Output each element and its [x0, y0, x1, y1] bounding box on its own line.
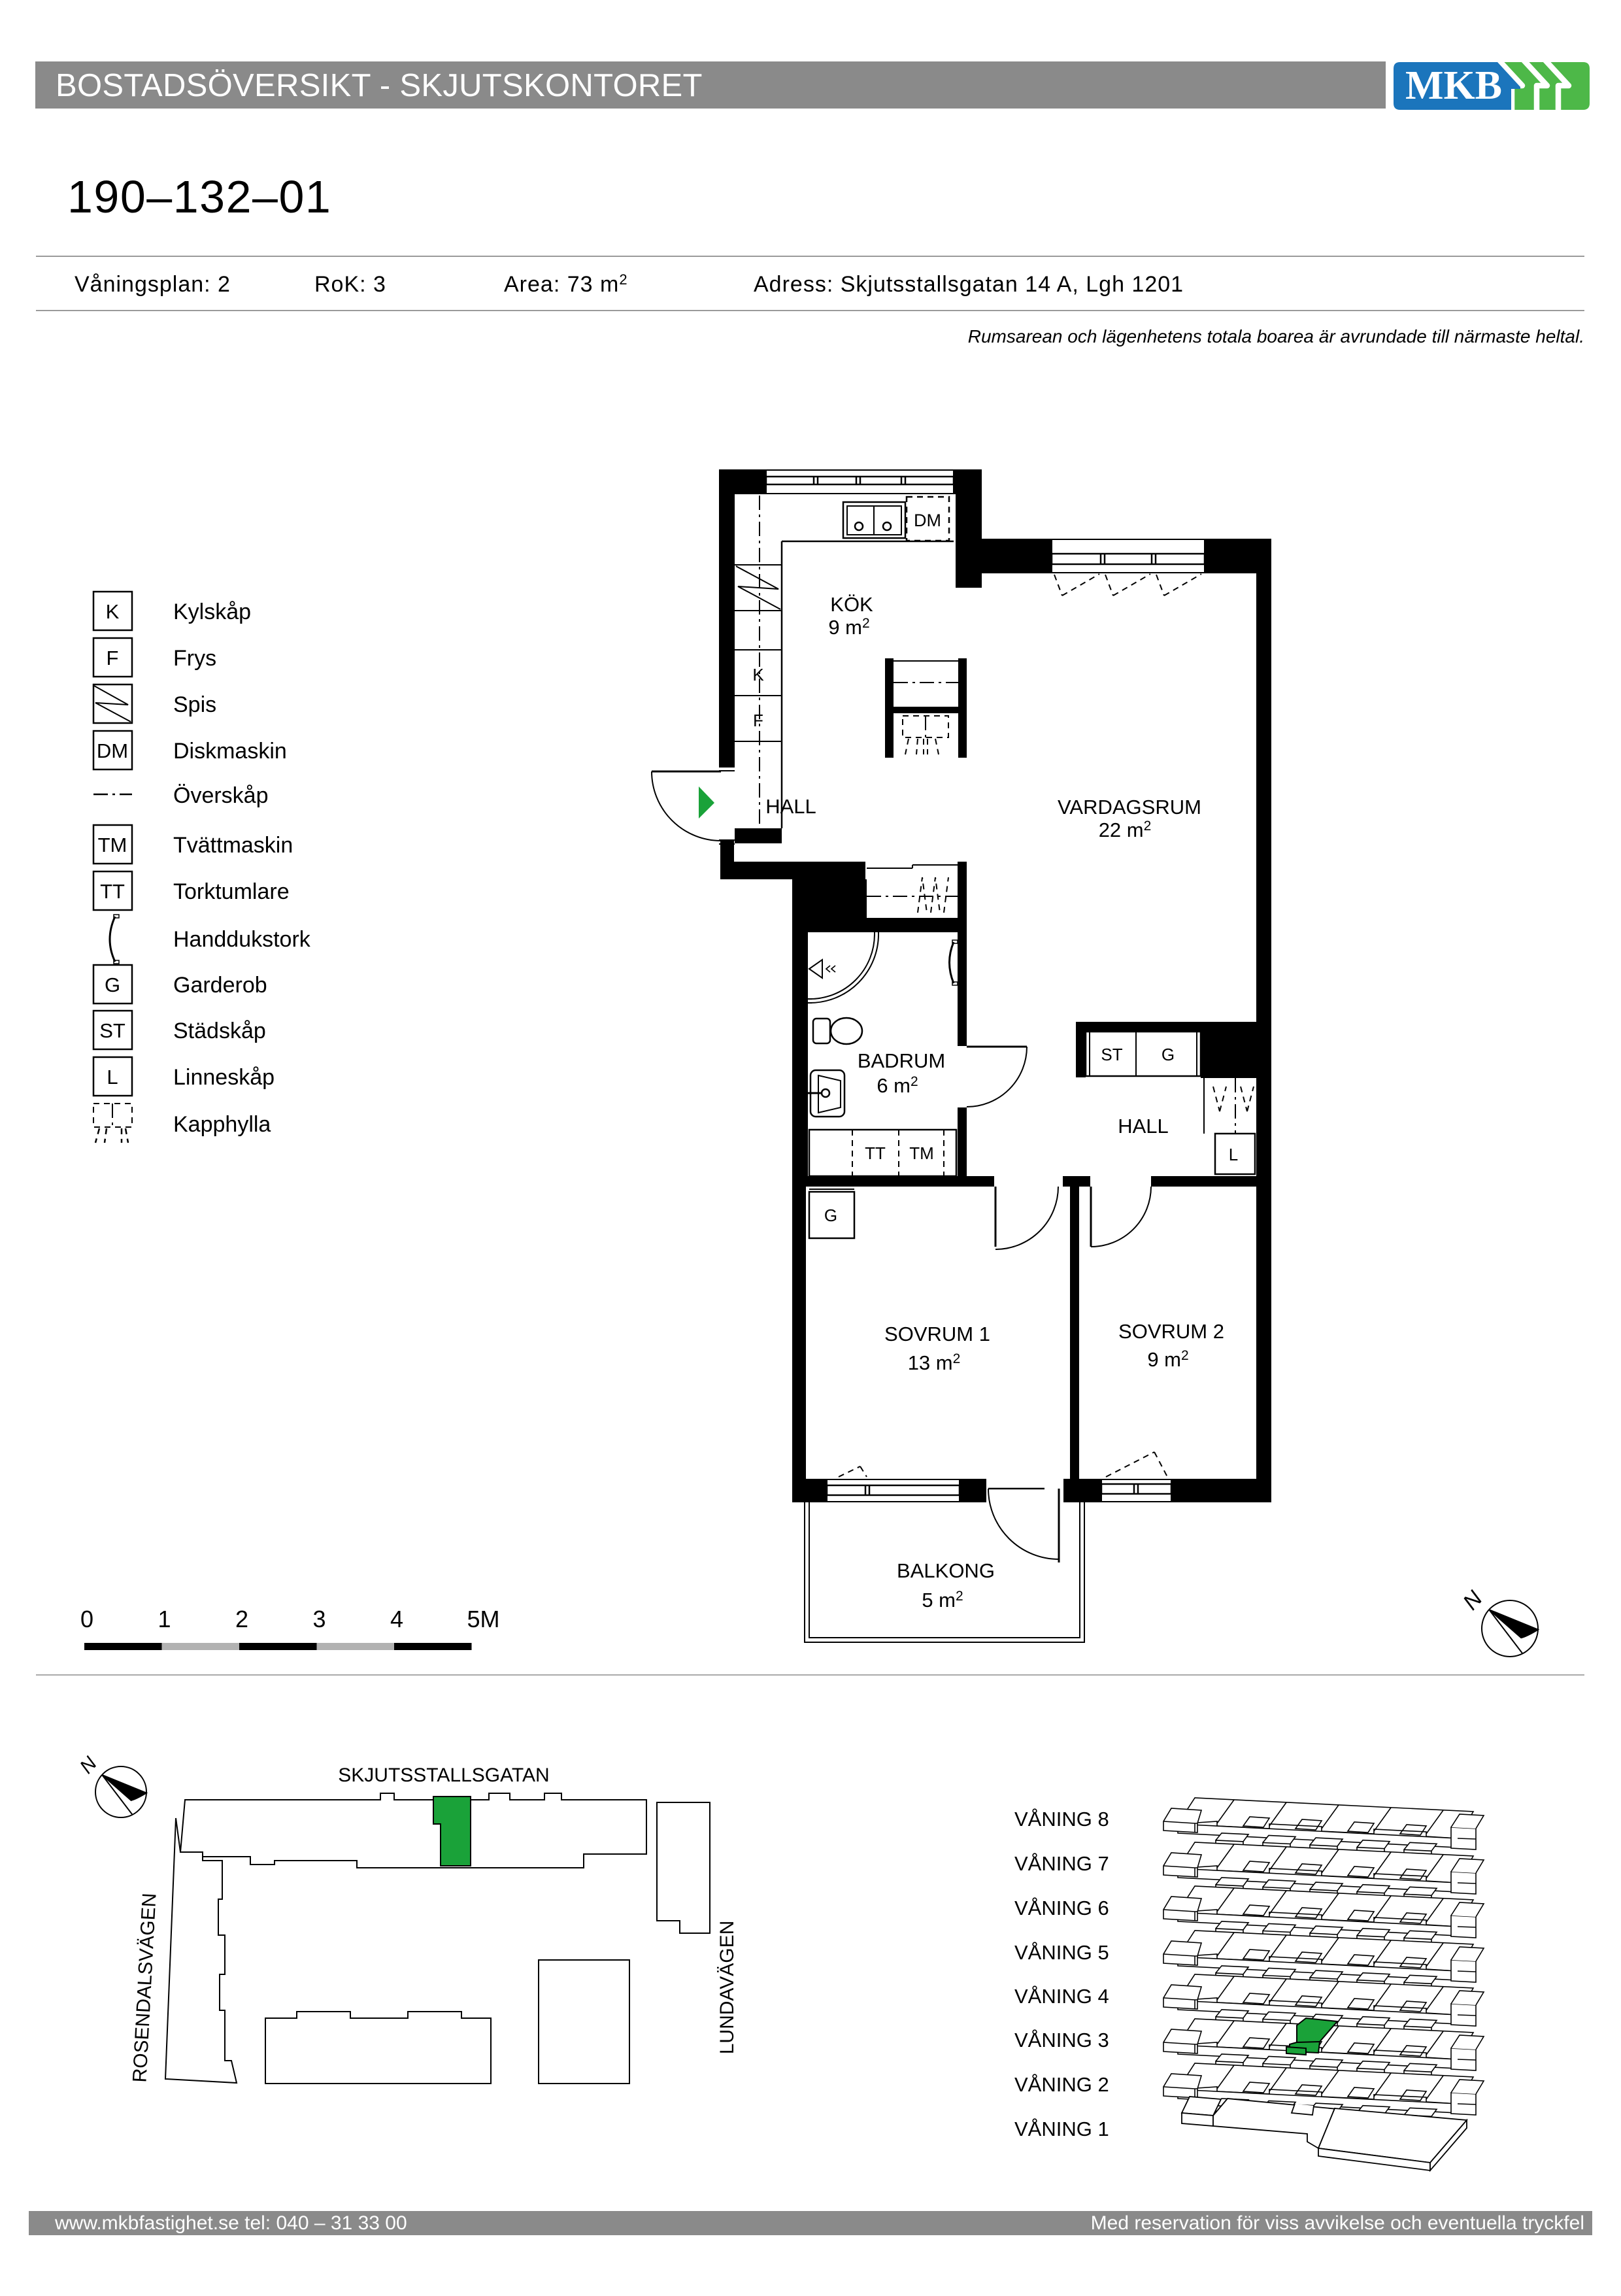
- svg-text:TM: TM: [98, 834, 127, 856]
- svg-text:BOSTADSÖVERSIKT - SKJUTSKONTOR: BOSTADSÖVERSIKT - SKJUTSKONTORET: [56, 68, 703, 103]
- svg-text:5M: 5M: [467, 1606, 499, 1632]
- svg-text:VÅNING 1: VÅNING 1: [1014, 2118, 1109, 2140]
- svg-text:Frys: Frys: [173, 646, 216, 671]
- svg-text:SKJUTSSTALLSGATAN: SKJUTSSTALLSGATAN: [338, 1764, 549, 1786]
- svg-text:Handdukstork: Handdukstork: [173, 927, 311, 952]
- svg-text:TT: TT: [100, 880, 125, 903]
- svg-text:LUNDAVÄGEN: LUNDAVÄGEN: [716, 1921, 738, 2055]
- svg-text:VARDAGSRUM: VARDAGSRUM: [1058, 796, 1201, 819]
- svg-text:Diskmaskin: Diskmaskin: [173, 739, 287, 764]
- svg-text:K: K: [752, 665, 764, 684]
- svg-text:Tvättmaskin: Tvättmaskin: [173, 833, 293, 858]
- svg-text:TM: TM: [909, 1143, 934, 1163]
- svg-text:KÖK: KÖK: [830, 593, 873, 616]
- svg-text:www.mkbfastighet.se tel: 040: www.mkbfastighet.se tel: 040 – 31 33 00: [54, 2212, 407, 2234]
- svg-text:Med reservation för viss avvik: Med reservation för viss avvikelse och e…: [1091, 2212, 1584, 2234]
- svg-text:HALL: HALL: [1118, 1115, 1169, 1138]
- svg-text:K: K: [106, 600, 120, 623]
- svg-text:13 m2: 13 m2: [908, 1351, 961, 1374]
- svg-text:G: G: [1161, 1045, 1175, 1064]
- svg-text:VÅNING 8: VÅNING 8: [1014, 1808, 1109, 1831]
- svg-text:Städskåp: Städskåp: [173, 1019, 266, 1043]
- svg-text:VÅNING 2: VÅNING 2: [1014, 2073, 1109, 2096]
- svg-text:Spis: Spis: [173, 692, 216, 717]
- svg-text:22 m2: 22 m2: [1099, 819, 1152, 841]
- svg-text:RoK: 3: RoK: 3: [314, 272, 386, 297]
- svg-text:DM: DM: [914, 511, 941, 530]
- svg-text:Våningsplan: 2: Våningsplan: 2: [75, 272, 231, 297]
- svg-text:3: 3: [312, 1606, 326, 1632]
- svg-text:BADRUM: BADRUM: [858, 1049, 945, 1072]
- svg-text:HALL: HALL: [765, 795, 816, 818]
- svg-text:Överskåp: Överskåp: [173, 783, 269, 808]
- svg-text:VÅNING 5: VÅNING 5: [1014, 1941, 1109, 1964]
- svg-text:MKB: MKB: [1405, 63, 1502, 108]
- svg-text:G: G: [824, 1206, 837, 1225]
- svg-text:ST: ST: [99, 1019, 125, 1042]
- svg-text:VÅNING 4: VÅNING 4: [1014, 1985, 1109, 2008]
- svg-text:TT: TT: [865, 1143, 886, 1163]
- svg-text:190–132–01: 190–132–01: [67, 171, 331, 222]
- svg-text:Adress: Skjutsstallsgatan 14 A: Adress: Skjutsstallsgatan 14 A, Lgh 1201: [754, 272, 1184, 297]
- svg-text:F: F: [107, 647, 119, 669]
- svg-text:F: F: [753, 711, 763, 730]
- svg-text:DM: DM: [97, 739, 128, 762]
- svg-text:SOVRUM 1: SOVRUM 1: [884, 1323, 990, 1345]
- svg-text:L: L: [1229, 1145, 1238, 1164]
- svg-text:Torktumlare: Torktumlare: [173, 879, 290, 904]
- svg-text:0: 0: [80, 1606, 93, 1632]
- svg-text:Area: 73 m2: Area: 73 m2: [504, 271, 628, 297]
- svg-text:VÅNING 3: VÅNING 3: [1014, 2029, 1109, 2051]
- svg-text:1: 1: [158, 1606, 171, 1632]
- svg-text:VÅNING 7: VÅNING 7: [1014, 1852, 1109, 1875]
- svg-text:SOVRUM 2: SOVRUM 2: [1118, 1320, 1224, 1343]
- svg-text:Linneskåp: Linneskåp: [173, 1065, 275, 1090]
- svg-text:Kylskåp: Kylskåp: [173, 599, 251, 624]
- svg-text:VÅNING 6: VÅNING 6: [1014, 1897, 1109, 1919]
- svg-text:G: G: [105, 973, 120, 996]
- svg-text:Rumsarean och lägenhetens tota: Rumsarean och lägenhetens totala boarea …: [968, 326, 1584, 346]
- svg-text:2: 2: [235, 1606, 248, 1632]
- svg-text:Kapphylla: Kapphylla: [173, 1112, 271, 1137]
- svg-text:Garderob: Garderob: [173, 973, 267, 998]
- svg-text:BALKONG: BALKONG: [897, 1559, 995, 1582]
- svg-text:L: L: [107, 1066, 118, 1089]
- svg-text:ST: ST: [1101, 1045, 1122, 1064]
- svg-text:4: 4: [390, 1606, 403, 1632]
